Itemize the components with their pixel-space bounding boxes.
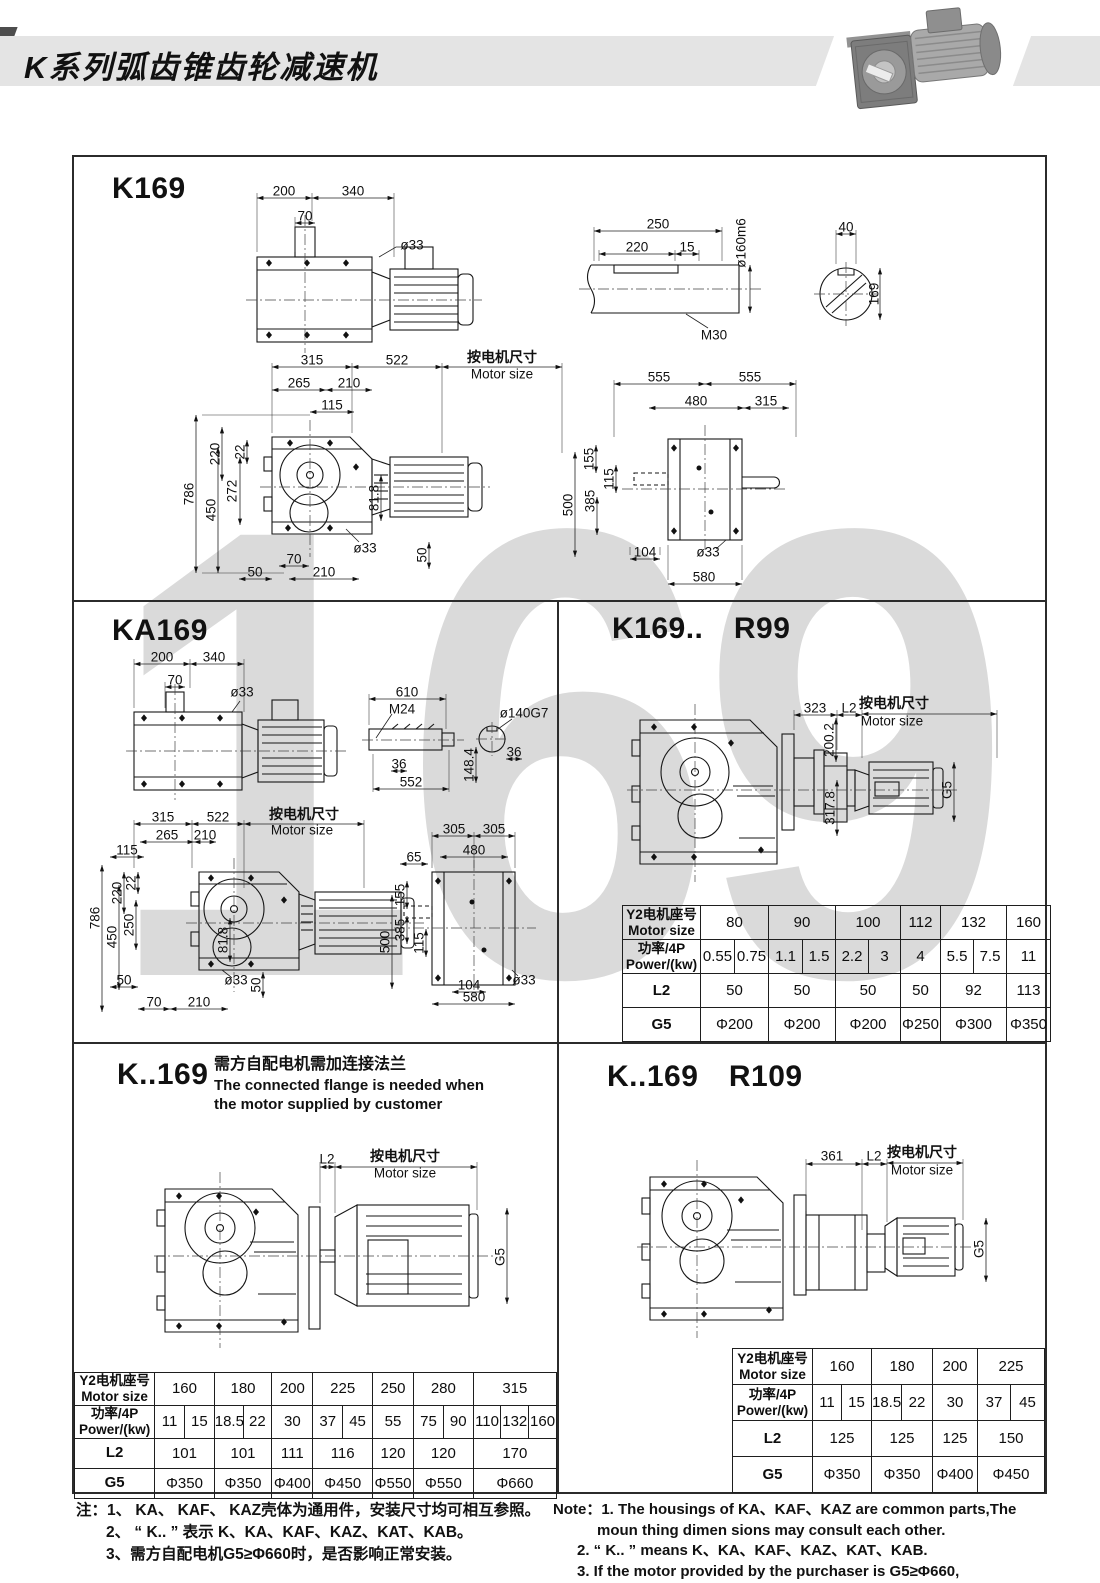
dim-label: 480 — [685, 394, 708, 409]
table-cell: 112 — [901, 906, 941, 940]
dim-label: 220 — [208, 443, 223, 466]
section-k169-custom: K..169 需方自配电机需加连接法兰 The connected flange… — [74, 1042, 557, 1492]
dim-label: 250 — [122, 914, 137, 937]
dim-label: 323 — [804, 701, 827, 716]
dim-label: 522 — [386, 353, 409, 368]
dim-label: 580 — [463, 990, 486, 1005]
dim-label: G5 — [940, 781, 955, 799]
dim-label: 552 — [400, 775, 423, 790]
section-k169: K169 — [74, 157, 1045, 600]
r99-motor-table: Y2电机座号Motor size8090100112132160功率/4PPow… — [622, 905, 1051, 1042]
dim-label: 500 — [378, 931, 393, 954]
header-accent — [0, 27, 18, 36]
dim-label: 450 — [204, 499, 219, 522]
dim-label: 220 — [626, 240, 649, 255]
k169-r109-drawing — [557, 1042, 1045, 1348]
flange-note: 需方自配电机需加连接法兰 The connected flange is nee… — [214, 1054, 514, 1115]
table-cell: Φ250 — [901, 1008, 941, 1042]
k169-drawing — [74, 157, 1045, 600]
table-cell: 1.1 — [769, 940, 803, 974]
dim-label: Motor size — [471, 367, 533, 382]
dim-label: ø33 — [512, 973, 535, 988]
table-cell: Φ350 — [1007, 1008, 1051, 1042]
dim-label: 200 — [273, 184, 296, 199]
table-cell: 110 — [473, 1405, 501, 1438]
table-cell: 30 — [933, 1385, 978, 1421]
k169-r99-drawing — [557, 600, 1045, 900]
dim-label: ø33 — [400, 238, 423, 253]
flange-note-en-2: the motor supplied by customer — [214, 1095, 514, 1115]
dim-label: 340 — [203, 650, 226, 665]
dim-label: 305 — [443, 822, 466, 837]
dim-label: 480 — [463, 843, 486, 858]
dim-label: 36 — [506, 745, 521, 760]
table-cell: 250 — [372, 1373, 413, 1406]
table-cell: 90 — [769, 906, 836, 940]
drawing-frame: 169 K169 — [72, 155, 1047, 1494]
dim-label: ø33 — [230, 685, 253, 700]
table-cell: 101 — [214, 1438, 272, 1468]
dim-label: 580 — [693, 570, 716, 585]
page-title: K系列弧齿锥齿轮减速机 — [24, 42, 378, 87]
dim-label: 555 — [648, 370, 671, 385]
dim-label: 按电机尺寸 — [887, 1142, 957, 1162]
dim-label: 按电机尺寸 — [269, 804, 339, 824]
table-cell: 7.5 — [974, 940, 1007, 974]
dim-label: ø33 — [353, 541, 376, 556]
table-cell: Φ350 — [813, 1457, 872, 1493]
dim-label: 81.8 — [216, 927, 231, 953]
table-cell: Φ660 — [473, 1468, 556, 1498]
divider — [557, 600, 559, 1492]
flange-note-en-1: The connected flange is needed when — [214, 1076, 514, 1096]
table-cell: 11 — [1007, 940, 1051, 974]
table-cell: Φ350 — [214, 1468, 272, 1498]
note-zh-line: 注：1、 KA、 KAF、 KAZ壳体为通用件，安装尺寸均可相互参照。 — [76, 1500, 540, 1522]
gearbox-product-image — [835, 2, 1045, 114]
table-cell: 22 — [902, 1385, 933, 1421]
table-cell: 15 — [842, 1385, 872, 1421]
table-cell: 101 — [155, 1438, 215, 1468]
row-header: Y2电机座号Motor size — [75, 1373, 155, 1406]
table-cell: 125 — [933, 1421, 978, 1457]
dim-label: 155 — [582, 448, 597, 471]
dim-label: L2 — [841, 701, 856, 716]
dim-label: 按电机尺寸 — [467, 347, 537, 367]
dim-label: 500 — [561, 494, 576, 517]
table-cell: Φ200 — [769, 1008, 836, 1042]
dim-label: 265 — [156, 828, 179, 843]
table-cell: 170 — [473, 1438, 556, 1468]
row-header: L2 — [733, 1421, 813, 1457]
dim-label: 155 — [393, 884, 408, 907]
table-cell: Φ400 — [933, 1457, 978, 1493]
dim-label: 265 — [288, 376, 311, 391]
table-cell: 160 — [1007, 906, 1051, 940]
notes-chinese: 注：1、 KA、 KAF、 KAZ壳体为通用件，安装尺寸均可相互参照。 2、 “… — [76, 1500, 540, 1566]
dim-label: 200 — [151, 650, 174, 665]
table-cell: 1.5 — [803, 940, 836, 974]
dim-label: 315 — [301, 353, 324, 368]
table-cell: 225 — [978, 1349, 1045, 1385]
table-cell: 2.2 — [836, 940, 869, 974]
dim-label: M24 — [389, 702, 415, 717]
row-header: 功率/4PPower/(kw) — [733, 1385, 813, 1421]
table-cell: 116 — [313, 1438, 373, 1468]
k169-custom-motor-table: Y2电机座号Motor size160180200225250280315功率/… — [74, 1372, 557, 1499]
table-cell: 50 — [901, 974, 941, 1008]
dim-label: 450 — [105, 926, 120, 949]
dim-label: 104 — [634, 545, 657, 560]
dim-label: 按电机尺寸 — [370, 1146, 440, 1166]
divider — [74, 1042, 1045, 1044]
note-en-line: Note：1. The housings of KA、KAF、KAZ are c… — [553, 1500, 1016, 1521]
dim-label: 220 — [110, 882, 125, 905]
section-k169-r99: K169.. R99 — [557, 600, 1045, 1042]
dim-label: 70 — [286, 552, 301, 567]
table-cell: 11 — [813, 1385, 842, 1421]
table-cell: 125 — [872, 1421, 933, 1457]
divider — [74, 600, 1045, 602]
table-cell: 11 — [155, 1405, 185, 1438]
row-header: G5 — [623, 1008, 701, 1042]
table-cell: 100 — [836, 906, 901, 940]
dim-label: G5 — [972, 1240, 987, 1258]
table-cell: 113 — [1007, 974, 1051, 1008]
dim-label: G5 — [493, 1248, 508, 1266]
row-header: L2 — [75, 1438, 155, 1468]
table-cell: Φ200 — [836, 1008, 901, 1042]
dim-label: 200.2 — [822, 723, 837, 757]
dim-label: 305 — [483, 822, 506, 837]
table-cell: 45 — [1011, 1385, 1045, 1421]
dim-label: Motor size — [891, 1163, 953, 1178]
r109-motor-table: Y2电机座号Motor size160180200225功率/4PPower/(… — [732, 1348, 1045, 1493]
row-header: Y2电机座号Motor size — [623, 906, 701, 940]
dim-label: 115 — [412, 932, 427, 954]
table-cell: 22 — [243, 1405, 272, 1438]
dim-label: 50 — [116, 973, 131, 988]
table-cell: 280 — [414, 1373, 474, 1406]
table-cell: 120 — [414, 1438, 474, 1468]
table-cell: Φ550 — [414, 1468, 474, 1498]
dim-label: 148.4 — [462, 748, 477, 782]
row-header: G5 — [75, 1468, 155, 1498]
table-cell: Φ400 — [272, 1468, 313, 1498]
table-cell: 315 — [473, 1373, 556, 1406]
table-cell: 45 — [343, 1405, 373, 1438]
table-cell: 55 — [372, 1405, 413, 1438]
table-cell: 30 — [272, 1405, 313, 1438]
dim-label: 555 — [739, 370, 762, 385]
table-cell: 37 — [313, 1405, 343, 1438]
row-header: 功率/4PPower/(kw) — [623, 940, 701, 974]
note-en-line: moun thing dimen sions may consult each … — [553, 1521, 1016, 1542]
dim-label: Motor size — [374, 1166, 436, 1181]
section-k169-r109: K..169 R109 — [557, 1042, 1045, 1492]
dim-label: 361 — [821, 1149, 844, 1164]
table-cell: Φ450 — [978, 1457, 1045, 1493]
dim-label: 81.8 — [367, 485, 382, 511]
table-cell: 0.75 — [735, 940, 769, 974]
table-cell: 80 — [701, 906, 769, 940]
table-cell: 180 — [214, 1373, 272, 1406]
dim-label: 340 — [342, 184, 365, 199]
table-cell: 225 — [313, 1373, 373, 1406]
dim-label: ø33 — [224, 973, 247, 988]
table-cell: 18.5 — [214, 1405, 243, 1438]
dim-label: 15 — [679, 240, 694, 255]
table-cell: 50 — [701, 974, 769, 1008]
table-cell: 0.55 — [701, 940, 735, 974]
table-cell: Φ550 — [372, 1468, 413, 1498]
note-zh-line: 2、 “ K.. ” 表示 K、KA、KAF、KAZ、KAT、KAB。 — [76, 1522, 540, 1544]
table-cell: 150 — [978, 1421, 1045, 1457]
flange-note-zh: 需方自配电机需加连接法兰 — [214, 1054, 514, 1076]
dim-label: 385 — [393, 919, 408, 942]
table-cell: 132 — [501, 1405, 529, 1438]
table-cell: 160 — [155, 1373, 215, 1406]
table-cell: Φ300 — [941, 1008, 1007, 1042]
dim-label: 70 — [297, 209, 312, 224]
dim-label: 210 — [194, 828, 217, 843]
table-cell: 75 — [414, 1405, 444, 1438]
table-cell: 200 — [933, 1349, 978, 1385]
dim-label: 210 — [338, 376, 361, 391]
dim-label: Motor size — [271, 823, 333, 838]
row-header: G5 — [733, 1457, 813, 1493]
table-cell: 3 — [869, 940, 901, 974]
dim-label: 50 — [247, 565, 262, 580]
dim-label: 522 — [207, 810, 230, 825]
dim-label: 786 — [182, 483, 197, 506]
dim-label: 385 — [583, 490, 598, 513]
row-header: Y2电机座号Motor size — [733, 1349, 813, 1385]
dim-label: 36 — [391, 757, 406, 772]
table-cell: 90 — [443, 1405, 473, 1438]
dim-label: L2 — [866, 1149, 881, 1164]
dim-label: 115 — [602, 468, 617, 490]
catalog-page: K系列弧齿锥齿轮减速机 169 — [0, 0, 1100, 1583]
table-cell: Φ450 — [313, 1468, 373, 1498]
dim-label: M30 — [701, 328, 727, 343]
table-cell: Φ350 — [872, 1457, 933, 1493]
table-cell: 160 — [813, 1349, 872, 1385]
dim-label: 250 — [647, 217, 670, 232]
dim-label: 65 — [406, 850, 421, 865]
dim-label: 272 — [225, 480, 240, 503]
dim-label: 按电机尺寸 — [859, 693, 929, 713]
dim-label: 22 — [233, 444, 248, 459]
dim-label: ø160m6 — [734, 218, 749, 268]
dim-label: 610 — [396, 685, 419, 700]
note-en-line: 2. “ K.. ” means K、KA、KAF、KAZ、KAT、KAB. — [553, 1541, 1016, 1562]
table-cell: 18.5 — [872, 1385, 902, 1421]
table-cell: 160 — [529, 1405, 557, 1438]
table-cell: 111 — [272, 1438, 313, 1468]
table-cell: 4 — [901, 940, 941, 974]
dim-label: 50 — [415, 547, 430, 562]
dim-label: 50 — [249, 977, 264, 992]
dim-label: Motor size — [861, 714, 923, 729]
dim-label: ø140G7 — [500, 706, 549, 721]
dim-label: 169 — [867, 283, 882, 306]
dim-label: ø33 — [696, 545, 719, 560]
table-cell: 5.5 — [941, 940, 974, 974]
dim-label: L2 — [319, 1152, 334, 1167]
table-cell: 200 — [272, 1373, 313, 1406]
row-header: L2 — [623, 974, 701, 1008]
table-cell: Φ200 — [701, 1008, 769, 1042]
note-en-line: 3. If the motor provided by the purchase… — [553, 1562, 1016, 1583]
dim-label: 315 — [755, 394, 778, 409]
dim-label: 70 — [146, 995, 161, 1010]
note-zh-line: 3、需方自配电机G5≥Φ660时，是否影响正常安装。 — [76, 1544, 540, 1566]
row-header: 功率/4PPower/(kw) — [75, 1405, 155, 1438]
dim-label: 210 — [313, 565, 336, 580]
table-cell: 15 — [184, 1405, 214, 1438]
table-cell: 125 — [813, 1421, 872, 1457]
table-cell: 120 — [372, 1438, 413, 1468]
section-ka169: KA169 — [74, 600, 557, 1042]
table-cell: Φ350 — [155, 1468, 215, 1498]
dim-label: 40 — [838, 220, 853, 235]
dim-label: 70 — [167, 673, 182, 688]
table-cell: 50 — [836, 974, 901, 1008]
dim-label: 22 — [124, 875, 139, 890]
table-cell: 37 — [978, 1385, 1011, 1421]
dim-label: 210 — [188, 995, 211, 1010]
dim-label: 315 — [152, 810, 175, 825]
table-cell: 180 — [872, 1349, 933, 1385]
dim-label: 317.8 — [823, 791, 838, 825]
dim-label: 115 — [321, 398, 343, 413]
table-cell: 92 — [941, 974, 1007, 1008]
dim-label: 786 — [88, 907, 103, 930]
table-cell: 132 — [941, 906, 1007, 940]
table-cell: 50 — [769, 974, 836, 1008]
notes-english: Note：1. The housings of KA、KAF、KAZ are c… — [553, 1500, 1016, 1583]
dim-label: 115 — [116, 843, 138, 858]
